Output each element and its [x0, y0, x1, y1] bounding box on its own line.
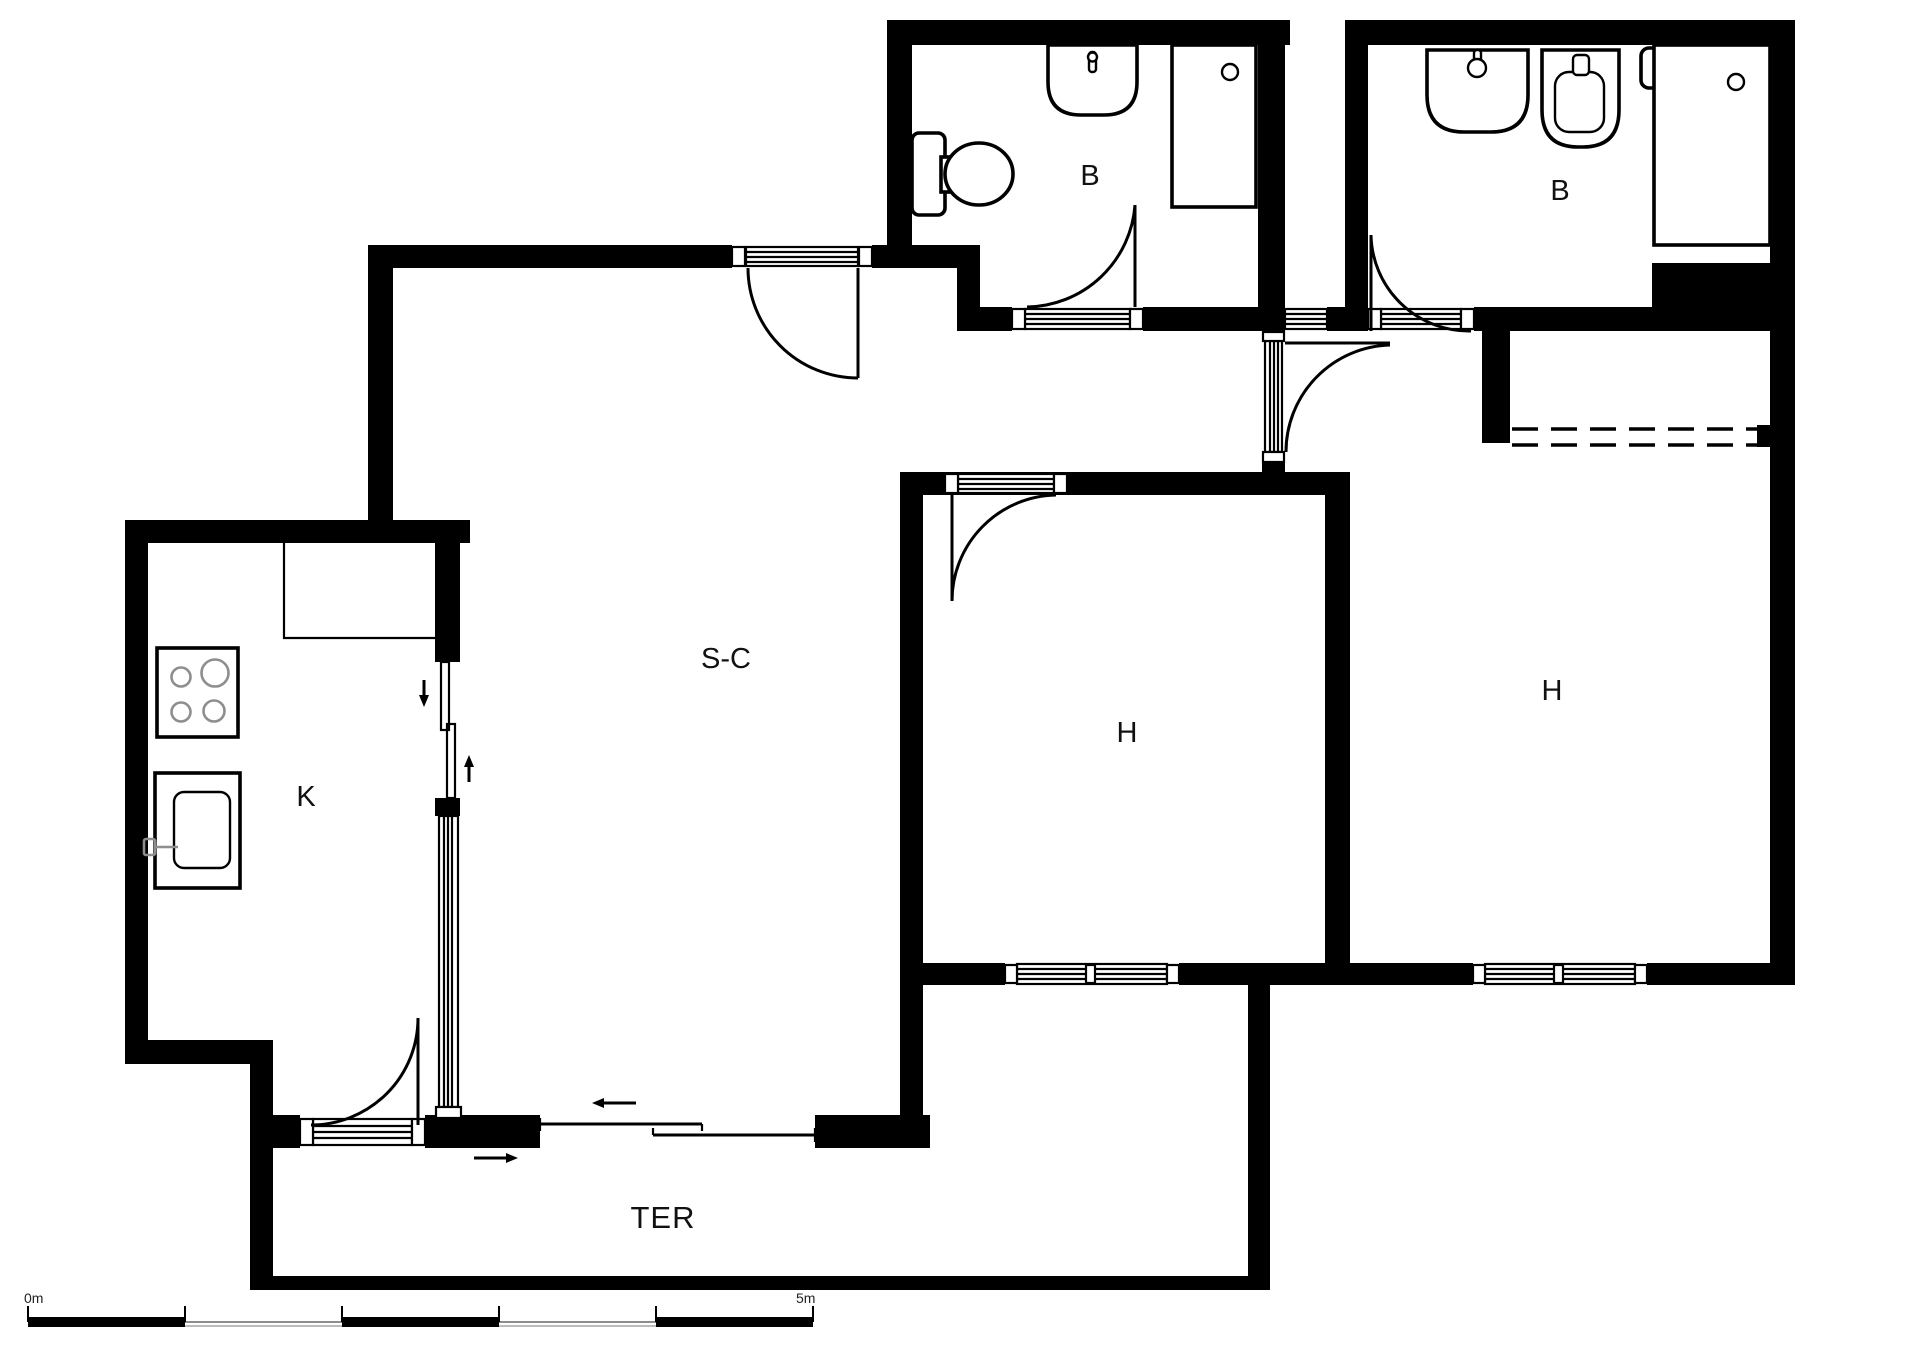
scale-bar-start-label: 0m: [24, 1290, 43, 1306]
window-kitchen-partition: [436, 816, 461, 1118]
doors: [311, 205, 1471, 1125]
sink-bathroom-right: [1427, 50, 1528, 132]
scale-bar-end-label: 5m: [796, 1290, 815, 1306]
floor-plan-drawing: S-C K H H B B TER 0m 5m: [0, 0, 1920, 1358]
arrow-left-icon: [592, 1098, 636, 1108]
threshold-entry: [1285, 307, 1327, 331]
sliding-door-kitchen: [436, 662, 460, 798]
closet-dashed-lines: [1512, 429, 1757, 445]
threshold-livingroom-top: [732, 246, 872, 267]
threshold-bathroom-left: [1012, 307, 1143, 331]
room-label-bedroom-middle: H: [1117, 717, 1138, 749]
arrow-up-icon: [464, 755, 474, 782]
walls: [125, 20, 1795, 1290]
door-bedroom-middle: [952, 495, 1056, 601]
threshold-livingroom-bottom: [300, 1115, 425, 1148]
scale-bar: 0m 5m: [24, 1290, 815, 1327]
room-label-kitchen: K: [296, 781, 316, 813]
arrow-right-icon: [474, 1153, 518, 1163]
sliding-door-terrace: [540, 1115, 815, 1148]
kitchen-sink: [144, 773, 240, 888]
floor-plan-page: S-C K H H B B TER 0m 5m: [0, 0, 1920, 1358]
window-bedroom-middle: [1005, 963, 1179, 985]
room-label-livingroom: S-C: [701, 643, 751, 675]
arrow-down-icon: [419, 680, 429, 707]
door-bathroom-left: [1027, 205, 1135, 307]
shower-bathroom-left: [1172, 45, 1256, 207]
window-bedroom-right: [1473, 963, 1647, 985]
threshold-bedroom-middle: [945, 473, 1067, 494]
windows-and-thresholds: [300, 246, 1647, 1148]
shower-bathroom-right: [1654, 45, 1770, 245]
threshold-bedroom-right-door: [1262, 332, 1285, 462]
room-label-bedroom-right: H: [1542, 675, 1563, 707]
sink-bathroom-left: [1048, 45, 1137, 115]
door-livingroom-bottom: [311, 1018, 418, 1125]
door-livingroom-top: [748, 268, 858, 378]
stove: [157, 648, 238, 737]
room-label-bathroom-right: B: [1550, 175, 1569, 207]
kitchen-counter-line: [284, 543, 443, 638]
bidet-bathroom-right: [1542, 50, 1619, 147]
room-label-terrace: TER: [631, 1200, 696, 1235]
toilet-bathroom-left: [912, 133, 1013, 215]
door-bedroom-right: [1285, 343, 1390, 452]
room-label-bathroom-left: B: [1080, 160, 1099, 192]
